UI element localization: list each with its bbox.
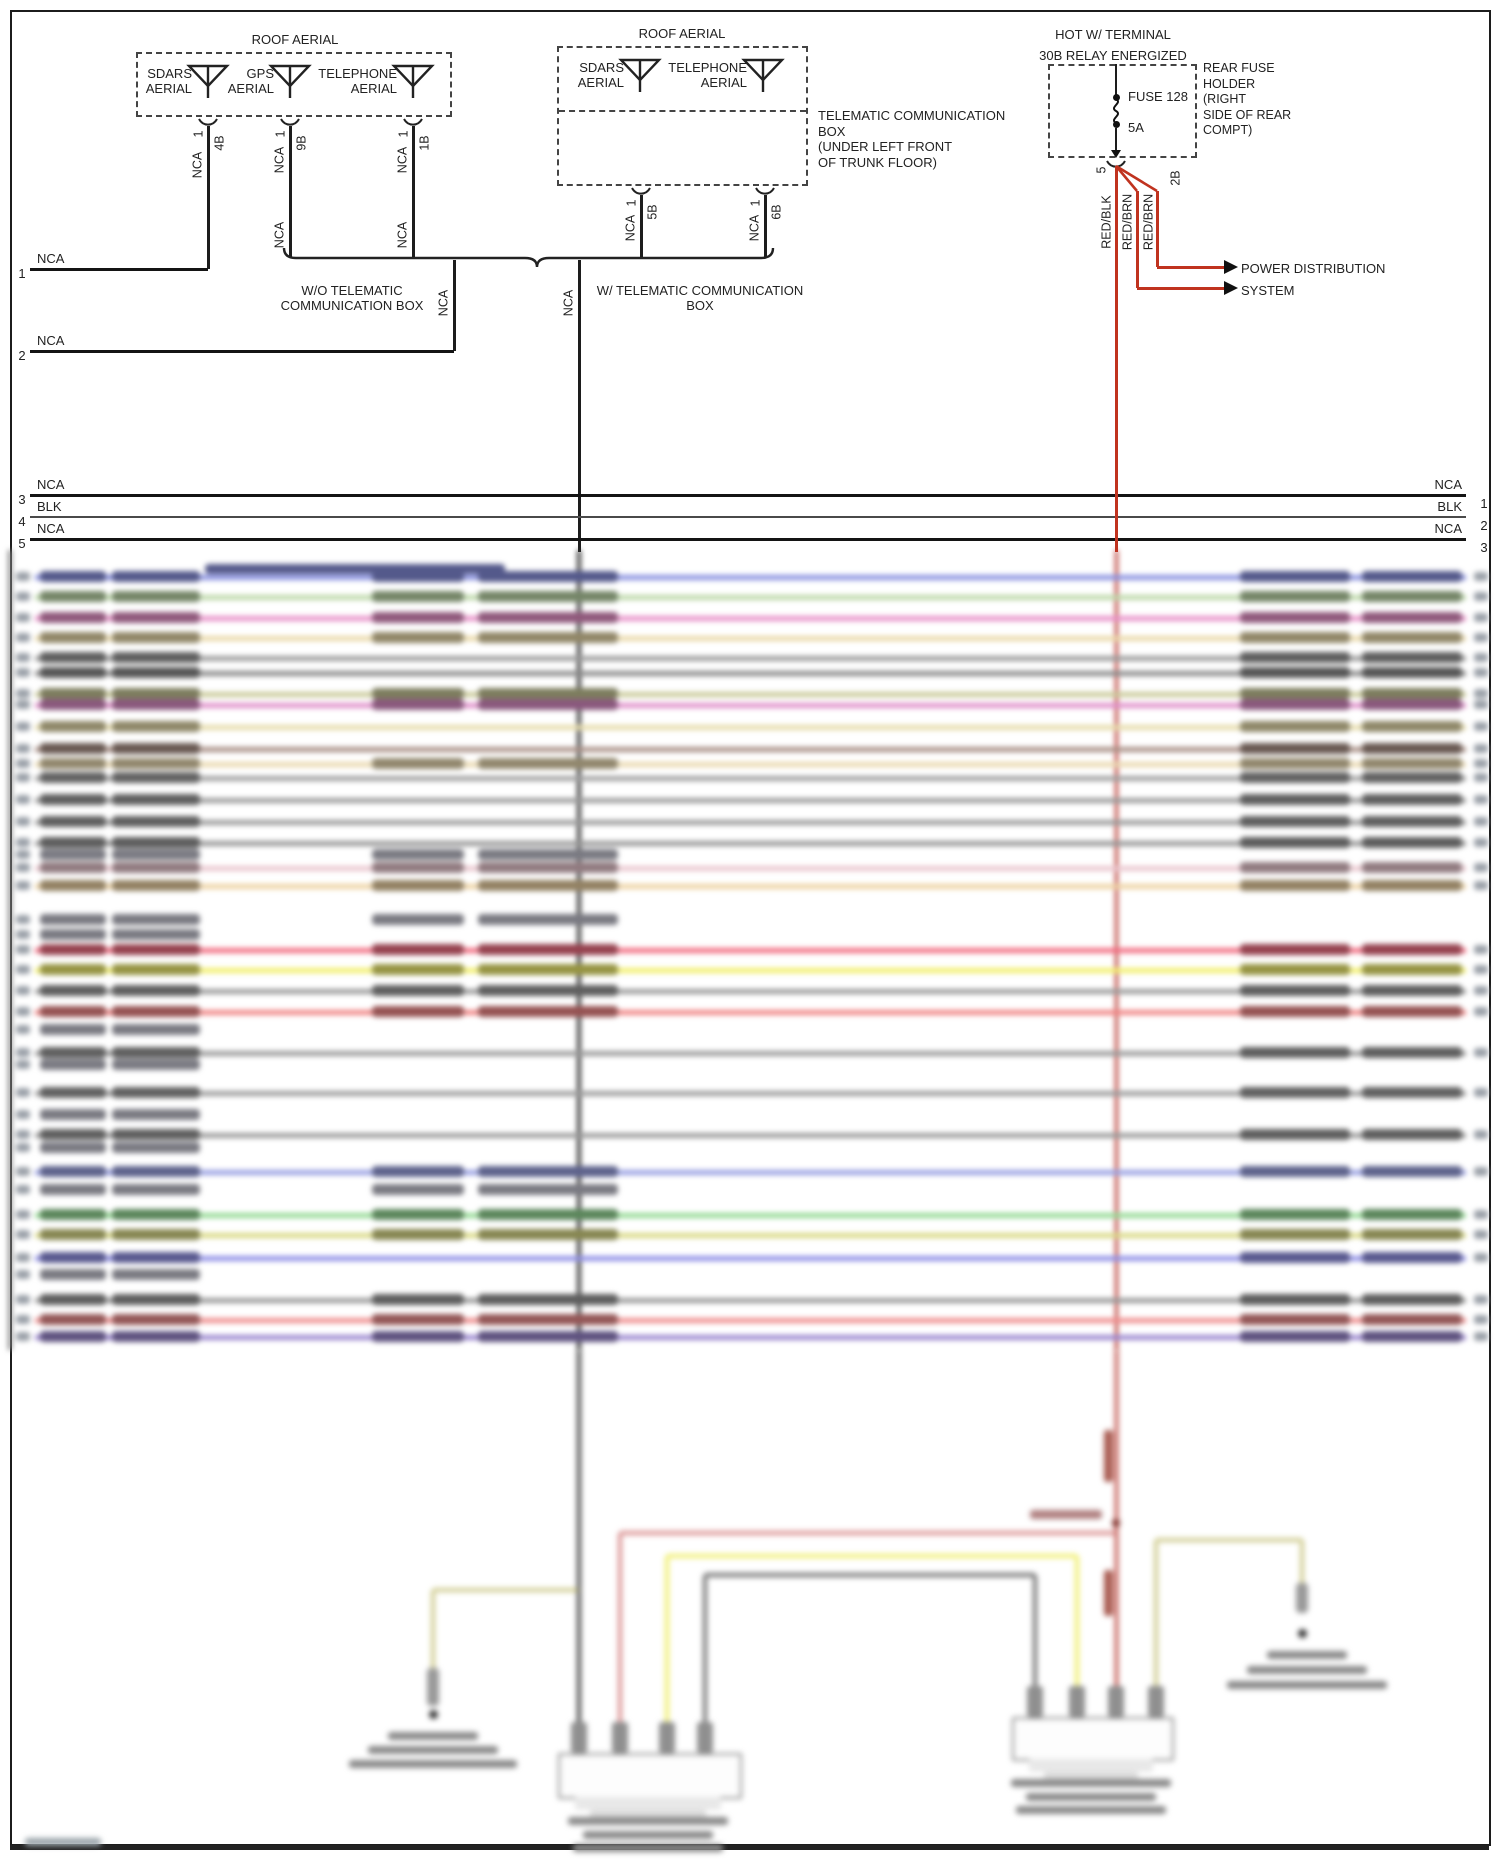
fuse-holder-line: SIDE OF REAR: [1203, 108, 1291, 124]
row-label-blob: [40, 1047, 106, 1058]
row-pin-blob: [16, 1332, 30, 1341]
row-label-blob: [478, 758, 618, 769]
row-label-blob: [478, 1294, 618, 1305]
row-pin-blob: [1474, 945, 1488, 954]
fuse-lead: [1115, 128, 1117, 150]
row-label-blob: [40, 1006, 106, 1017]
fuse-holder-line: COMPT): [1203, 123, 1291, 139]
fuse-amp: 5A: [1128, 120, 1144, 135]
row-pin-blob: [16, 1007, 30, 1016]
wire-label-blob: [1104, 1570, 1113, 1616]
row-label-blob: [1362, 944, 1462, 955]
row-label-blob: [40, 1314, 106, 1325]
row-pin-blob: [16, 1130, 30, 1139]
row-label-blob: [1240, 837, 1350, 848]
row-label-blob: [478, 985, 618, 996]
telematic-note-line: TELEMATIC COMMUNICATION: [818, 108, 1005, 124]
row-label-blob: [40, 1331, 106, 1342]
row-pin-blob: [16, 592, 30, 601]
row-label-blob: [40, 1109, 106, 1120]
wire-label-blob: [1104, 1430, 1113, 1482]
row-pin-blob: [1474, 986, 1488, 995]
bus-line: [30, 350, 454, 353]
row-label-blob: [112, 964, 200, 975]
row-pin-blob: [1474, 572, 1488, 581]
fuse-id: FUSE 128: [1128, 89, 1188, 104]
row-label-blob: [112, 1006, 200, 1017]
row-label-blob: [112, 794, 200, 805]
row-pin-blob: [1474, 795, 1488, 804]
wire-olive: [431, 1590, 435, 1668]
row-label-blob: [112, 721, 200, 732]
row-label-blob: [1240, 1129, 1350, 1140]
wire-gray: [705, 1573, 1035, 1578]
border-smudge: [8, 550, 12, 1350]
junction-dot: [1112, 1519, 1120, 1527]
row-label-blob: [1240, 1166, 1350, 1177]
brace-left-caption: W/O TELEMATICCOMMUNICATION BOX: [281, 283, 424, 313]
wire-olive: [1156, 1538, 1302, 1542]
wire-color-label: NCA: [273, 147, 288, 173]
row-label-blob: [1362, 1209, 1462, 1220]
row-label-blob: [478, 1006, 618, 1017]
row-label-blob: [1240, 1229, 1350, 1240]
row-label-blob: [112, 667, 200, 678]
wire-color-label: NCA: [437, 290, 452, 316]
row-label-blob: [40, 914, 106, 925]
component-text-blob: [1016, 1806, 1166, 1814]
aerial-antenna-icon: [741, 58, 785, 94]
row-label-blob: [1240, 985, 1350, 996]
component-text-blob: [568, 1817, 728, 1825]
fuse-arrow-down: [1111, 150, 1121, 158]
ground-text-blob: [1227, 1681, 1387, 1689]
connector-id: 1B: [418, 135, 433, 150]
row-pin-blob: [16, 653, 30, 662]
row-label-blob: [1362, 794, 1462, 805]
row-label-blob: [40, 794, 106, 805]
component-box-left: [558, 1753, 742, 1799]
row-pin-blob: [16, 1088, 30, 1097]
row-label-blob: [40, 1059, 106, 1070]
row-label-blob: [40, 1184, 106, 1195]
row-label-blob: [112, 849, 200, 860]
row-label-blob: [1362, 571, 1462, 582]
bus-line-color: NCA: [37, 477, 64, 492]
row-label-blob: [112, 1087, 200, 1098]
row-label-blob: [112, 837, 200, 848]
row-label-blob: [372, 880, 464, 891]
row-label-blob: [1240, 699, 1350, 710]
row-pin-blob: [16, 1253, 30, 1262]
row-label-blob: [1240, 612, 1350, 623]
row-label-blob: [478, 849, 618, 860]
row-label-blob: [1362, 880, 1462, 891]
telematic-note-line: (UNDER LEFT FRONT: [818, 139, 1005, 155]
aerial-label: TELEPHONEAERIAL: [287, 66, 397, 96]
row-pin-blob: [16, 633, 30, 642]
row-pin-blob: [1474, 613, 1488, 622]
row-label-blob: [1362, 1166, 1462, 1177]
pin-number: 1: [274, 131, 289, 138]
row-label-blob: [112, 632, 200, 643]
row-label-blob: [40, 743, 106, 754]
fuse-title: HOT W/ TERMINAL30B RELAY ENERGIZED: [1039, 24, 1187, 66]
roof-aerial-title: ROOF AERIAL: [639, 26, 726, 41]
aerial-label-line: AERIAL: [637, 75, 747, 90]
bus-line-number: 4: [14, 514, 30, 529]
row-label-blob: [112, 1109, 200, 1120]
fuse-holder-note: REAR FUSEHOLDER(RIGHTSIDE OF REARCOMPT): [1203, 61, 1291, 139]
aerial-label-line: SDARS: [514, 60, 624, 75]
bus-line-color: NCA: [1366, 521, 1462, 536]
row-label-blob: [1362, 964, 1462, 975]
aerial-label-line: TELEPHONE: [287, 66, 397, 81]
fuse-holder-line: (RIGHT: [1203, 92, 1291, 108]
row-label-blob: [40, 1209, 106, 1220]
row-pin-blob: [16, 795, 30, 804]
row-label-blob: [112, 1314, 200, 1325]
row-label-blob: [372, 591, 464, 602]
row-label-blob: [1362, 1229, 1462, 1240]
row-label-blob: [478, 1331, 618, 1342]
row-label-blob: [40, 1166, 106, 1177]
ground-dot: [1298, 1629, 1307, 1638]
row-label-blob: [478, 688, 618, 699]
row-label-blob: [1362, 1006, 1462, 1017]
row-label-blob: [40, 1252, 106, 1263]
row-label-blob: [112, 914, 200, 925]
row-label-blob: [40, 1294, 106, 1305]
wire-red-vertical: [1115, 166, 1118, 552]
row-label-blob: [40, 1229, 106, 1240]
roof-aerial-title: ROOF AERIAL: [252, 32, 339, 47]
row-label-blob: [372, 758, 464, 769]
row-pin-blob: [16, 572, 30, 581]
row-label-blob: [372, 1166, 464, 1177]
wire-color-label: NCA: [396, 147, 411, 173]
brace-caption-line: W/O TELEMATIC: [281, 283, 424, 298]
row-label-blob: [40, 985, 106, 996]
row-pin-blob: [1474, 773, 1488, 782]
row-pin-blob: [16, 817, 30, 826]
row-label-blob: [372, 944, 464, 955]
row-pin-blob: [1474, 1210, 1488, 1219]
row-label-blob: [112, 880, 200, 891]
row-label-blob: [112, 944, 200, 955]
row-label-blob: [40, 964, 106, 975]
row-label-blob: [1362, 862, 1462, 873]
row-label-blob: [40, 880, 106, 891]
power-distribution-caption: POWER DISTRIBUTIONSYSTEM: [1241, 258, 1385, 301]
row-pin-blob: [16, 759, 30, 768]
bus-line-color: BLK: [37, 499, 62, 514]
row-label-blob: [1240, 1006, 1350, 1017]
row-pin-blob: [1474, 1007, 1488, 1016]
row-label-blob: [372, 1314, 464, 1325]
fuse-title-line: 30B RELAY ENERGIZED: [1039, 45, 1187, 66]
row-label-blob: [112, 1229, 200, 1240]
row-label-blob: [1362, 985, 1462, 996]
row-label-blob: [478, 1166, 618, 1177]
row-label-blob: [1240, 1314, 1350, 1325]
row-label-blob: [40, 849, 106, 860]
arrow-right-icon: [1224, 281, 1238, 295]
component-connector-stub: [1108, 1686, 1124, 1717]
row-label-blob: [1240, 721, 1350, 732]
blurred-bottom-zone: [0, 1350, 1500, 1845]
aerial-label-line: GPS: [164, 66, 274, 81]
component-connector-stub: [571, 1722, 587, 1753]
row-label-blob: [372, 688, 464, 699]
ground-text-blob: [1247, 1666, 1367, 1674]
row-label-blob: [1240, 794, 1350, 805]
row-pin-blob: [16, 1295, 30, 1304]
row-pin-blob: [16, 930, 30, 939]
component-connector-stub: [659, 1722, 675, 1753]
bus-line-number: 5: [14, 536, 30, 551]
row-pin-blob: [1474, 1088, 1488, 1097]
component-step: [1029, 1759, 1153, 1772]
aerial-antenna-icon: [391, 64, 435, 100]
row-pin-blob: [16, 773, 30, 782]
row-pin-blob: [1474, 881, 1488, 890]
wire-color-label: NCA: [562, 290, 577, 316]
row-label-blob: [40, 929, 106, 940]
row-label-blob: [1240, 1047, 1350, 1058]
component-box-right: [1012, 1717, 1174, 1761]
row-pin-blob: [1474, 689, 1488, 698]
fuse-lead: [1115, 64, 1117, 95]
row-pin-blob: [16, 689, 30, 698]
ground-dot: [429, 1710, 438, 1719]
row-label-blob: [1362, 1294, 1462, 1305]
row-label-blob: [40, 667, 106, 678]
component-connector-stub: [1069, 1686, 1085, 1717]
row-label-blob: [372, 1006, 464, 1017]
ground-text-blob: [1267, 1651, 1347, 1659]
row-label-blob: [1362, 1087, 1462, 1098]
row-label-blob: [112, 1294, 200, 1305]
row-label-blob: [112, 929, 200, 940]
option-brace: [282, 246, 775, 272]
row-label-blob: [1362, 632, 1462, 643]
row-label-blob: [1362, 1252, 1462, 1263]
component-text-blob: [1026, 1793, 1156, 1801]
wire-label-blob: [1030, 1510, 1102, 1519]
wire-red-branch: [620, 1531, 1116, 1535]
row-label-blob: [112, 743, 200, 754]
wire-color-label: NCA: [748, 215, 763, 241]
row-label-blob: [478, 1229, 618, 1240]
telematic-note: TELEMATIC COMMUNICATIONBOX(UNDER LEFT FR…: [818, 108, 1005, 170]
telematic-note-line: BOX: [818, 124, 1005, 140]
wire-vertical: [412, 126, 415, 258]
bus-line-color: BLK: [1366, 499, 1462, 514]
row-label-blob: [40, 721, 106, 732]
wire-red-horiz: [1137, 287, 1224, 290]
row-label-blob: [1362, 612, 1462, 623]
row-label-blob: [112, 1142, 200, 1153]
row-label-blob: [112, 612, 200, 623]
pin-number: 1: [625, 200, 640, 207]
row-label-blob: [112, 816, 200, 827]
row-label-blob: [1362, 1047, 1462, 1058]
row-pin-blob: [16, 722, 30, 731]
wire-color-label: RED/BRN: [1142, 194, 1157, 250]
aerial-label: SDARSAERIAL: [514, 60, 624, 90]
row-label-blob: [1362, 1314, 1462, 1325]
row-label-blob: [478, 591, 618, 602]
row-pin-blob: [16, 945, 30, 954]
row-label-blob: [372, 985, 464, 996]
ground-text-blob: [368, 1746, 498, 1754]
row-label-blob: [40, 632, 106, 643]
row-pin-blob: [16, 700, 30, 709]
row-label-blob: [372, 862, 464, 873]
row-label-blob: [112, 1129, 200, 1140]
watermark-blob: [25, 1838, 101, 1846]
row-label-blob: [372, 1294, 464, 1305]
row-pin-blob: [16, 986, 30, 995]
row-pin-blob: [16, 1315, 30, 1324]
row-label-blob: [372, 914, 464, 925]
row-label-blob: [478, 964, 618, 975]
wire-red-horiz: [1157, 266, 1224, 269]
row-label-blob: [372, 699, 464, 710]
row-label-blob: [1362, 652, 1462, 663]
row-label-blob: [40, 837, 106, 848]
component-text-blob: [583, 1831, 713, 1839]
row-label-blob: [1240, 964, 1350, 975]
row-label-blob: [478, 699, 618, 710]
row-pin-blob: [16, 838, 30, 847]
row-label-blob: [372, 1331, 464, 1342]
aerial-label-line: TELEPHONE: [637, 60, 747, 75]
row-label-blob: [40, 699, 106, 710]
wire-color-label: NCA: [191, 152, 206, 178]
fuse-holder-line: REAR FUSE: [1203, 61, 1291, 77]
brace-caption-line: W/ TELEMATIC COMMUNICATION: [597, 283, 804, 298]
wiring-diagram-page: ROOF AERIALSDARSAERIALGPSAERIALTELEPHONE…: [0, 0, 1500, 1861]
row-label-blob: [112, 1252, 200, 1263]
wire-vertical: [577, 1350, 580, 1753]
row-label-blob: [1362, 743, 1462, 754]
aerial-label: GPSAERIAL: [164, 66, 274, 96]
row-pin-blob: [16, 1185, 30, 1194]
row-label-blob: [1362, 1129, 1462, 1140]
row-pin-blob: [16, 1110, 30, 1119]
wire-color-label: NCA: [396, 222, 411, 248]
brace-right-caption: W/ TELEMATIC COMMUNICATIONBOX: [597, 283, 804, 313]
fuse-dot: [1113, 121, 1120, 128]
pin-number: 1: [749, 200, 764, 207]
row-pin-blob: [1474, 668, 1488, 677]
aerial-label-line: AERIAL: [287, 81, 397, 96]
row-label-blob: [478, 880, 618, 891]
row-pin-blob: [1474, 817, 1488, 826]
row-label-blob: [1240, 1331, 1350, 1342]
row-label-blob: [1240, 667, 1350, 678]
wire-olive: [1154, 1540, 1158, 1690]
ground-text-blob: [349, 1760, 517, 1768]
row-label-blob: [40, 1024, 106, 1035]
pin-number: 1: [397, 131, 412, 138]
row-label-blob: [40, 772, 106, 783]
row-label-blob: [1240, 862, 1350, 873]
component-text-blob: [1011, 1779, 1171, 1787]
row-label-blob: [112, 1166, 200, 1177]
row-label-blob: [1240, 1252, 1350, 1263]
row-label-blob: [372, 571, 464, 582]
wire-vertical: [453, 260, 456, 351]
component-step: [575, 1797, 721, 1810]
row-label-blob: [112, 1331, 200, 1342]
aerial-label: TELEPHONEAERIAL: [637, 60, 747, 90]
row-label-blob: [40, 1142, 106, 1153]
bus-line-color: NCA: [37, 251, 64, 266]
row-label-blob: [1240, 816, 1350, 827]
row-pin-blob: [16, 863, 30, 872]
row-pin-blob: [16, 1270, 30, 1279]
wire-yellow: [667, 1554, 1077, 1558]
fuse-element-icon: [1108, 99, 1124, 123]
row-label-blob: [112, 1024, 200, 1035]
row-label-blob: [112, 571, 200, 582]
component-connector-stub: [697, 1722, 713, 1753]
row-pin-blob: [16, 881, 30, 890]
power-distribution-line: SYSTEM: [1241, 280, 1385, 302]
row-label-blob: [1362, 591, 1462, 602]
bus-line-number: 1: [1476, 496, 1492, 511]
row-label-blob: [1240, 1294, 1350, 1305]
row-pin-blob: [16, 1048, 30, 1057]
row-label-blob: [112, 652, 200, 663]
fuse-holder-line: HOLDER: [1203, 77, 1291, 93]
row-label-blob: [372, 632, 464, 643]
row-label-blob: [478, 914, 618, 925]
row-pin-blob: [1474, 1048, 1488, 1057]
row-pin-blob: [1474, 965, 1488, 974]
connector-id: 5B: [646, 204, 661, 219]
row-label-blob: [1240, 880, 1350, 891]
wire-red-brn: [1136, 191, 1139, 288]
row-pin-blob: [1474, 653, 1488, 662]
row-pin-blob: [1474, 863, 1488, 872]
row-label-blob: [40, 1129, 106, 1140]
bus-line-color: NCA: [37, 521, 64, 536]
row-label-blob: [112, 1269, 200, 1280]
bus-line: [30, 494, 1466, 497]
wire-color-label: NCA: [273, 222, 288, 248]
row-label-blob: [1362, 688, 1462, 699]
row-pin-blob: [16, 965, 30, 974]
row-label-blob: [112, 1184, 200, 1195]
wire-vertical: [578, 260, 581, 552]
row-label-blob: [1240, 571, 1350, 582]
connector-id: 9B: [295, 135, 310, 150]
row-label-blob: [40, 571, 106, 582]
telematic-note-line: OF TRUNK FLOOR): [818, 155, 1005, 171]
row-pin-blob: [1474, 722, 1488, 731]
connector-blob: [1296, 1583, 1308, 1613]
row-pin-blob: [16, 613, 30, 622]
blurred-wire-rows-zone: [0, 550, 1500, 1350]
row-pin-blob: [1474, 1167, 1488, 1176]
row-label-blob: [478, 1184, 618, 1195]
row-label-blob: [478, 632, 618, 643]
row-label-blob: [1240, 591, 1350, 602]
